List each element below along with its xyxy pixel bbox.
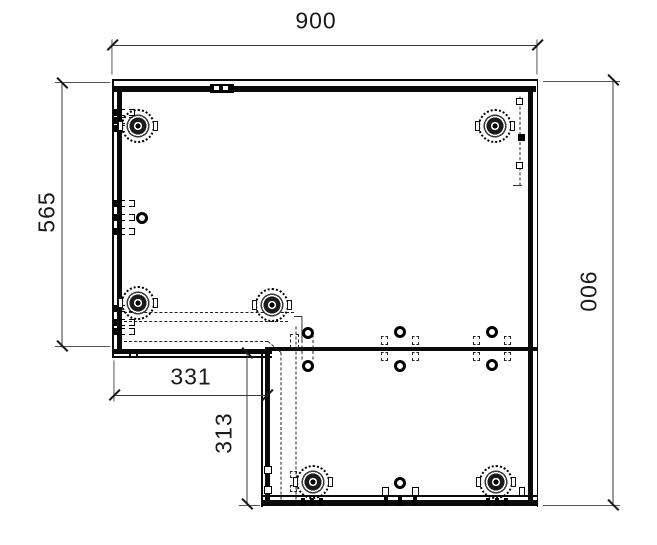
connector-mark: [113, 109, 117, 116]
drill-hole: [486, 326, 498, 338]
connector-mark: [113, 117, 117, 124]
drill-hole: [302, 360, 314, 372]
connector-mark: [119, 319, 125, 326]
connector-mark: [113, 305, 117, 312]
edge-connector-row: [113, 328, 136, 335]
connector-mark: [113, 125, 117, 132]
connector-mark: [113, 319, 117, 326]
corner-bracket-fitting: [264, 486, 272, 494]
edge-dowel-mark: [384, 497, 388, 505]
edge-connector-row: [113, 228, 136, 235]
panel-edge: [265, 347, 537, 351]
cam-lock-fitting: [121, 109, 155, 143]
drill-hole: [302, 327, 314, 339]
connector-mark: [113, 200, 117, 207]
connector-hole: [214, 86, 219, 90]
cam-lock-fitting: [296, 465, 330, 499]
dimension-label-notch-height: 313: [213, 412, 236, 453]
connector-mark: [119, 214, 125, 221]
hidden-connector: [290, 334, 299, 348]
edge-dowel-mark: [495, 498, 499, 505]
cam-lock-fitting: [255, 288, 289, 322]
panel-edge: [112, 79, 538, 81]
hidden-line: [281, 353, 282, 500]
bottom-edge-bracket: [382, 487, 389, 495]
hidden-line: [124, 341, 268, 342]
drill-hole: [394, 477, 406, 489]
bottom-edge-bracket: [412, 487, 419, 495]
edge-connector-row: [113, 200, 136, 207]
cam-lock-fitting: [121, 286, 155, 320]
dimension-label-notch-width: 331: [170, 366, 211, 389]
connector-mark: [129, 200, 135, 207]
hidden-connector: [381, 352, 388, 361]
dimension-line-overall-width: [112, 45, 538, 46]
extension-line: [543, 81, 620, 82]
cam-lock-fitting: [478, 109, 512, 143]
hidden-connector: [381, 336, 388, 345]
hidden-connector: [473, 352, 480, 361]
hidden-line: [520, 97, 521, 186]
dimension-label-left-depth: 565: [36, 191, 59, 232]
hidden-connector: [504, 336, 511, 345]
hidden-connector: [473, 336, 480, 345]
drill-hole: [394, 360, 406, 372]
extension-line: [543, 505, 620, 506]
dimension-line-notch-width: [114, 395, 267, 396]
panel-edge: [265, 352, 270, 502]
hidden-panel-edge: [513, 185, 522, 186]
corner-bracket-fitting: [516, 98, 523, 105]
panel-edge: [528, 86, 533, 503]
edge-dowel-mark: [413, 497, 417, 505]
panel-edge: [537, 79, 539, 507]
dimension-line-overall-height: [613, 79, 614, 506]
edge-dowel-mark: [310, 498, 314, 505]
bottom-edge-bracket: [519, 487, 525, 495]
connector-mark: [119, 328, 125, 335]
cam-lock-fitting: [479, 465, 513, 499]
edge-dowel-mark: [398, 497, 402, 505]
connector-mark: [113, 228, 117, 235]
hidden-fitting-block: [518, 134, 525, 141]
hidden-connector: [412, 336, 419, 345]
connector-mark: [119, 200, 125, 207]
drill-hole: [394, 326, 406, 338]
panel-edge: [112, 86, 536, 92]
top-edge-connector: [210, 84, 234, 93]
dimension-label-overall-height: 900: [577, 271, 600, 312]
edge-dowel-mark: [301, 498, 305, 505]
dimension-line-notch-height: [247, 352, 248, 505]
hidden-line: [313, 335, 314, 360]
connector-mark: [113, 214, 117, 221]
panel-edge: [261, 352, 263, 507]
edge-dowel-mark: [504, 498, 508, 505]
drill-hole: [136, 212, 148, 224]
edge-dowel-mark: [319, 498, 323, 505]
hidden-connector: [412, 352, 419, 361]
drill-hole: [486, 359, 498, 371]
connector-mark: [119, 228, 125, 235]
panel-edge: [136, 349, 138, 357]
dimension-line-left-depth: [62, 82, 63, 347]
edge-connector-row: [113, 214, 136, 221]
corner-bracket-fitting: [264, 466, 272, 474]
panel-edge: [129, 349, 131, 357]
edge-dowel-mark: [486, 498, 490, 505]
connector-mark: [113, 328, 117, 335]
corner-bracket-fitting: [516, 162, 523, 169]
edge-connector-row: [113, 319, 136, 326]
cabinet-panel-drawing: 900900565331313: [0, 0, 657, 545]
connector-mark: [129, 328, 135, 335]
hidden-connector: [504, 352, 511, 361]
connector-mark: [129, 228, 135, 235]
dimension-label-overall-width: 900: [295, 10, 336, 33]
connector-mark: [129, 214, 135, 221]
connector-hole: [223, 86, 228, 90]
hidden-line: [124, 321, 288, 322]
